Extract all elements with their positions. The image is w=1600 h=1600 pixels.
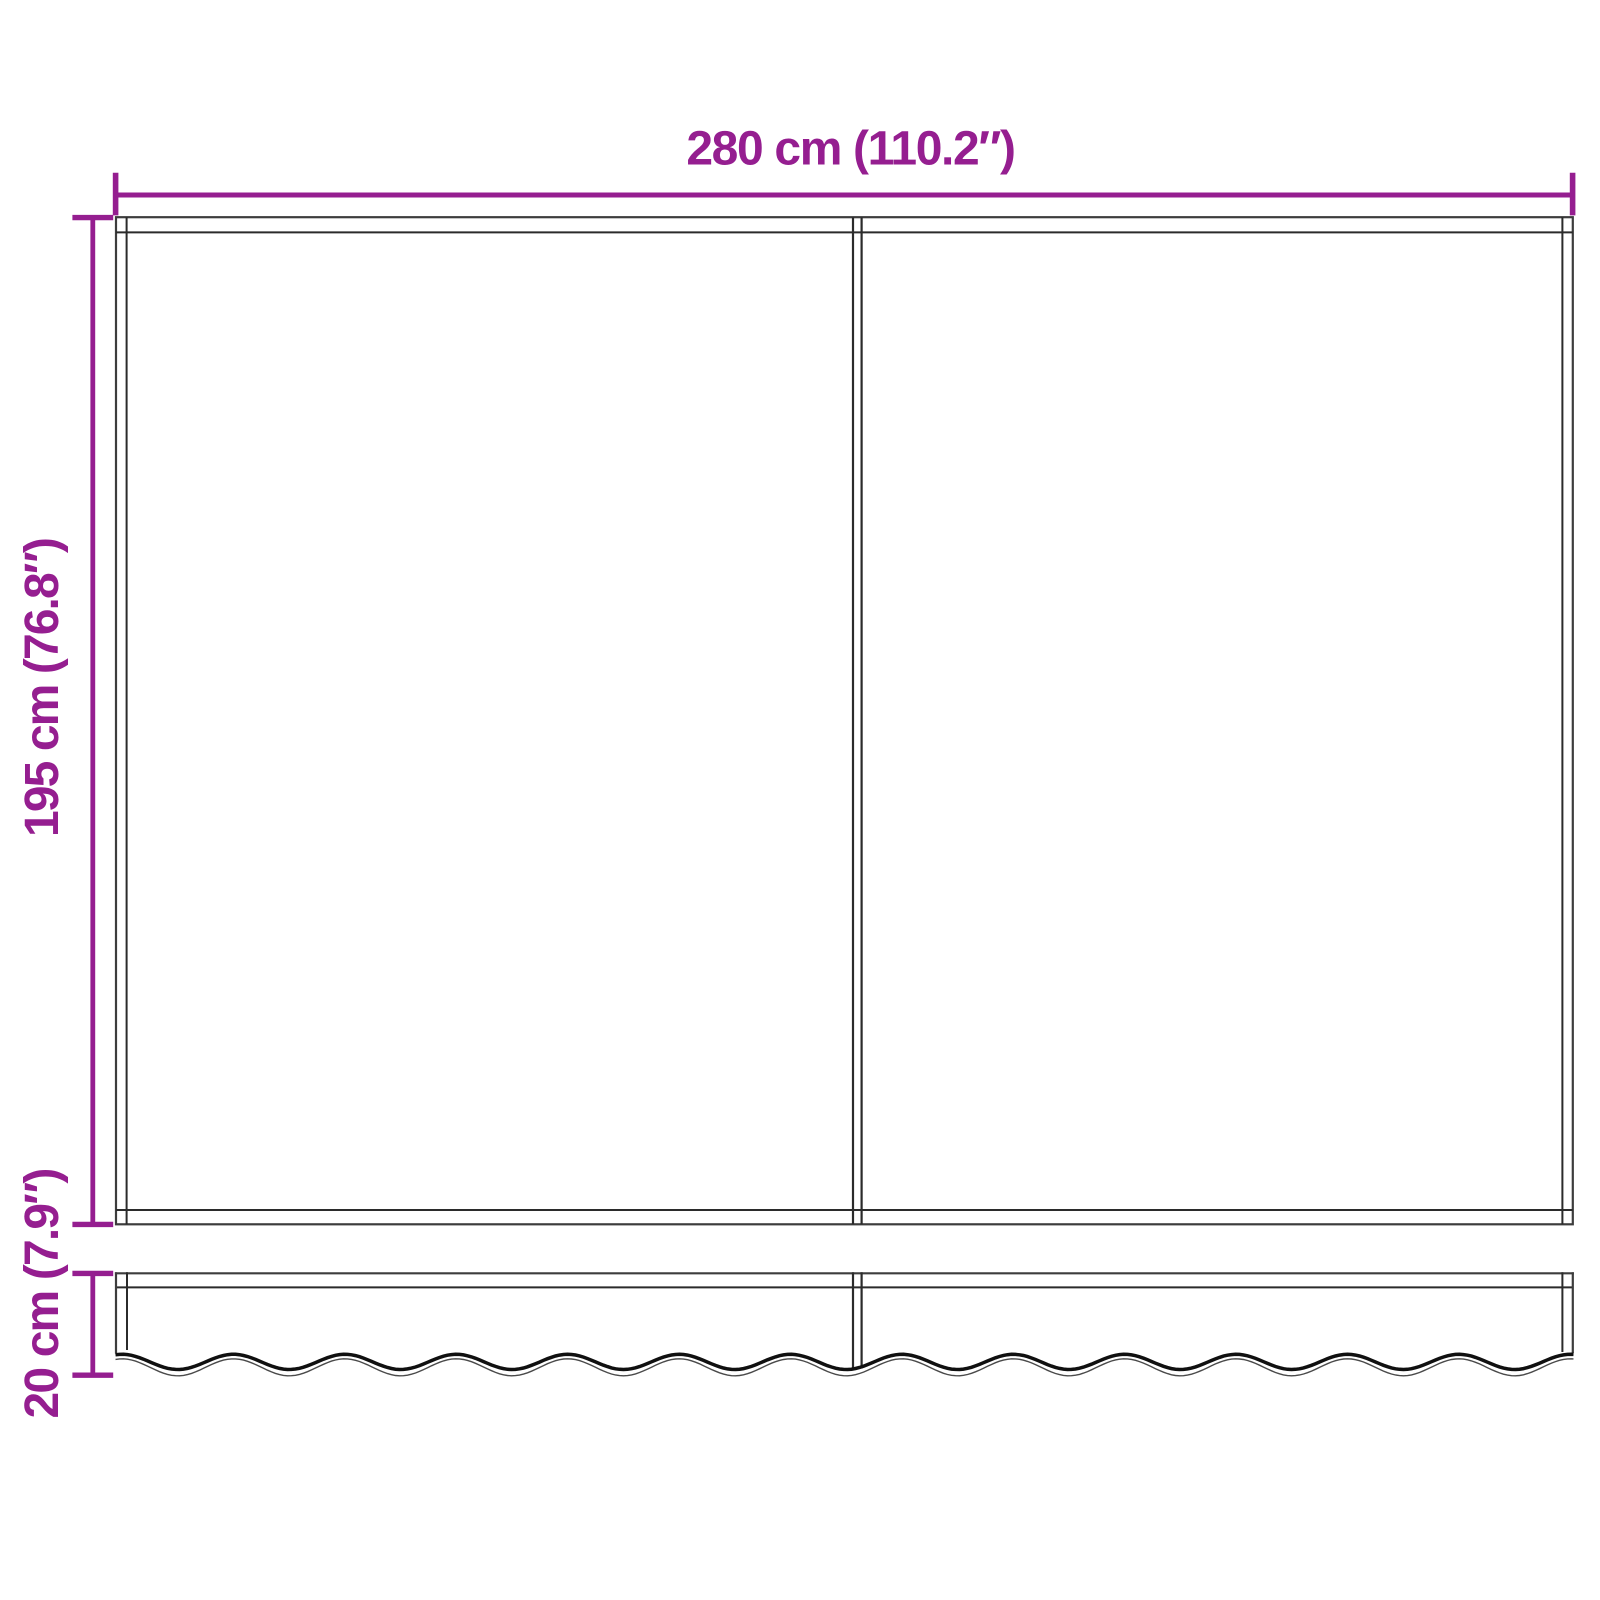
svg-text:195 cm (76.8″): 195 cm (76.8″) <box>16 539 69 837</box>
svg-text:20 cm (7.9″): 20 cm (7.9″) <box>16 1170 69 1419</box>
svg-text:280 cm (110.2″): 280 cm (110.2″) <box>686 123 1014 176</box>
